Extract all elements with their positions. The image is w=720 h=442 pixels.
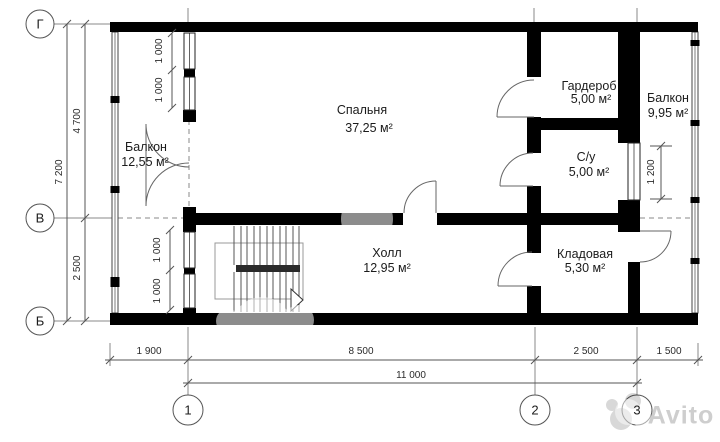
room-label-bathroom: С/у (577, 151, 596, 164)
room-label-wardrobe: Гардероб (562, 80, 617, 93)
floor-plan: Балкон 12,55 м² Спальня 37,25 м² Гардеро… (0, 0, 720, 442)
dim-bottom-right: 1 500 (656, 347, 681, 357)
room-area-storage: 5,30 м² (565, 262, 606, 275)
axis-marker-col-right: 3 (633, 404, 640, 417)
room-label-balcony-right: Балкон (647, 92, 689, 105)
floor-plan-drawing (0, 0, 720, 442)
dim-lower-height: 2 500 (73, 255, 83, 280)
axis-marker-col-mid: 2 (531, 404, 538, 417)
axis-marker-row-bottom: Б (36, 315, 45, 328)
room-area-hall: 12,95 м² (363, 262, 411, 275)
room-area-wardrobe: 5,00 м² (571, 93, 612, 106)
room-label-storage: Кладовая (557, 248, 613, 261)
dim-window-top-b: 1 000 (155, 77, 165, 102)
room-label-balcony-left: Балкон (125, 141, 167, 154)
dim-window-bottom-b: 1 000 (153, 278, 163, 303)
dim-bottom-main: 8 500 (348, 347, 373, 357)
walls (110, 22, 698, 325)
room-area-bedroom: 37,25 м² (345, 122, 393, 135)
dim-total-height: 7 200 (55, 159, 65, 184)
dim-upper-height: 4 700 (73, 108, 83, 133)
dim-window-top-a: 1 000 (155, 38, 165, 63)
axis-marker-row-top: Г (36, 18, 43, 31)
dim-window-bottom-a: 1 000 (153, 237, 163, 262)
room-area-bathroom: 5,00 м² (569, 166, 610, 179)
axis-marker-row-mid: В (36, 212, 45, 225)
watermark-brand-text: Avito (648, 404, 715, 429)
room-area-balcony-right: 9,95 м² (648, 107, 689, 120)
room-label-hall: Холл (372, 247, 401, 260)
room-area-balcony-left: 12,55 м² (121, 156, 169, 169)
room-label-bedroom: Спальня (337, 104, 387, 117)
dim-bottom-left: 1 900 (136, 347, 161, 357)
axis-marker-col-left: 1 (184, 404, 191, 417)
dim-window-right: 1 200 (647, 159, 657, 184)
dim-bottom-total: 11 000 (396, 371, 426, 381)
dim-bottom-mid: 2 500 (573, 347, 598, 357)
